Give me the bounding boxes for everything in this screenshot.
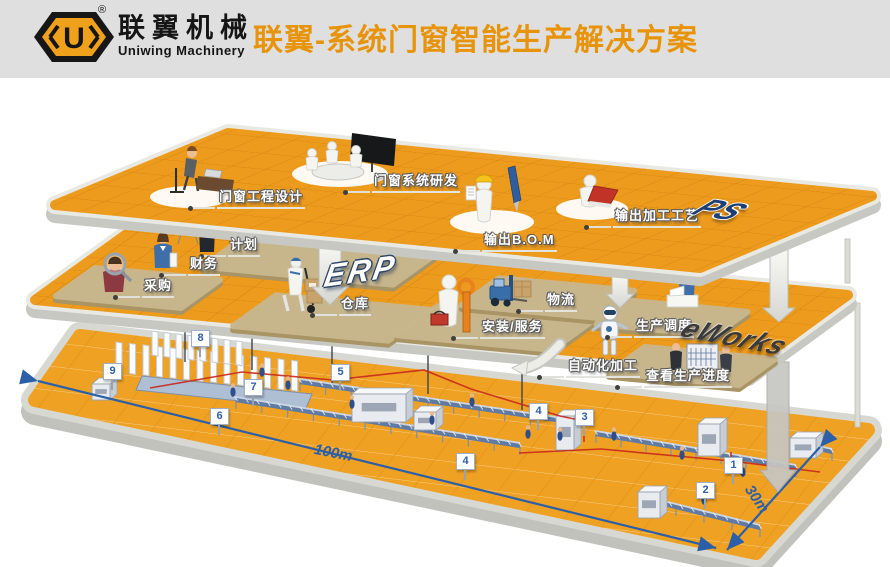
marker-3: 3 — [575, 409, 594, 426]
label-install: 安装/服务 — [480, 316, 545, 339]
brand-name-cn: 联翼机械 — [118, 13, 254, 43]
scene-canvas — [0, 0, 890, 567]
brand-name-en: Uniwing Machinery — [118, 43, 254, 58]
marker-1: 1 — [724, 457, 743, 474]
marker-4a: 4 — [456, 453, 475, 470]
label-plan: 计划 — [228, 234, 260, 257]
marker-4b: 4 — [529, 403, 548, 420]
marker-2: 2 — [696, 482, 715, 499]
marker-5: 5 — [331, 364, 350, 381]
brand-block: 联翼机械 Uniwing Machinery — [118, 13, 254, 58]
label-finance: 财务 — [188, 253, 220, 276]
marker-9: 9 — [103, 363, 122, 380]
label-purchase: 采购 — [142, 275, 174, 298]
logo-letter: U — [63, 22, 85, 55]
label-progress: 查看生产进度 — [644, 365, 732, 388]
page-title: 联翼-系统门窗智能生产解决方案 — [253, 15, 698, 59]
registered-mark: ® — [98, 4, 106, 16]
marker-7: 7 — [244, 379, 263, 396]
marker-6: 6 — [210, 408, 229, 425]
header-bar: U ® 联翼机械 Uniwing Machinery 联翼-系统门窗智能生产解决… — [0, 0, 890, 78]
label-sys-rd: 门窗系统研发 — [372, 170, 460, 193]
label-logistics: 物流 — [545, 289, 577, 312]
label-warehouse: 仓库 — [339, 293, 371, 316]
marker-8: 8 — [191, 330, 210, 347]
label-bom: 输出B.O.M — [482, 229, 557, 252]
label-eng-design: 门窗工程设计 — [217, 186, 305, 209]
label-auto: 自动化加工 — [566, 355, 640, 378]
poster: U ® 联翼机械 Uniwing Machinery 联翼-系统门窗智能生产解决… — [0, 0, 890, 567]
